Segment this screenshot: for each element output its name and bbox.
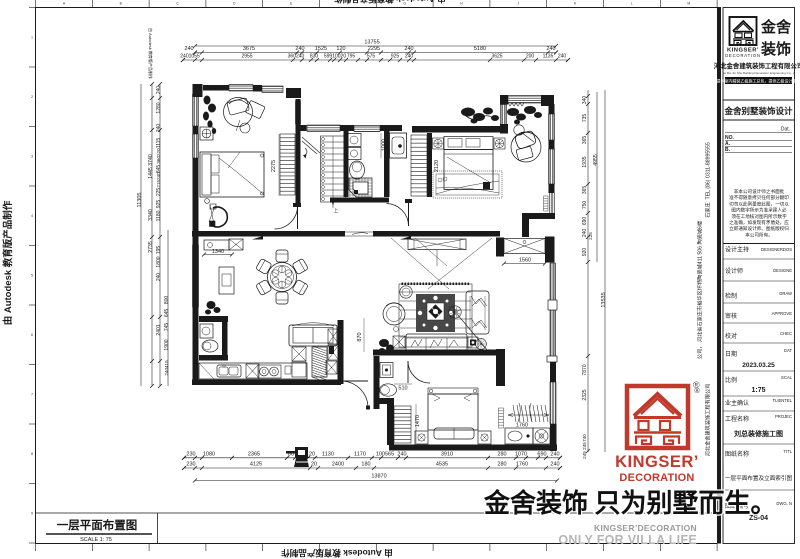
svg-text:230: 230 [186,452,195,458]
svg-text:3340: 3340 [148,209,154,221]
svg-text:925: 925 [391,54,400,60]
svg-text:金舍装饰 只为别墅而生。: 金舍装饰 只为别墅而生。 [483,488,777,518]
svg-text:1130: 1130 [322,452,334,458]
svg-text:925: 925 [156,200,162,209]
svg-text:240: 240 [156,86,162,95]
svg-text:195: 195 [156,246,162,255]
svg-text:SCAL: SCAL [781,375,793,380]
svg-text:920: 920 [582,248,588,257]
svg-text:3675: 3675 [243,46,255,52]
svg-text:KINGSER’DECORATION: KINGSER’DECORATION [594,523,697,533]
svg-text:工程名称: 工程名称 [725,415,749,423]
svg-text:750: 750 [582,201,588,210]
svg-text:本公司所有。: 本公司所有。 [745,231,773,238]
svg-text:审核: 审核 [725,312,737,320]
svg-text:图内数字所示为准承建人必: 图内数字所示为准承建人必 [731,207,787,214]
svg-text:740: 740 [582,434,587,442]
svg-text:2120: 2120 [434,160,440,172]
svg-text:DESIGNE: DESIGNE [773,268,792,273]
svg-text:230: 230 [186,462,195,468]
svg-text:5180: 5180 [474,46,486,52]
svg-text:1135: 1135 [543,54,554,60]
svg-text:7: 7 [31,392,33,396]
svg-text:由 Autodesk 教育版产品制作: 由 Autodesk 教育版产品制作 [148,28,154,79]
svg-text:1800: 1800 [156,256,162,267]
svg-text:刘总装修施工图: 刘总装修施工图 [734,429,783,438]
svg-text:280: 280 [497,462,506,468]
svg-text:3910: 3910 [441,452,453,458]
svg-text:DRAW: DRAW [779,291,792,296]
svg-text:240: 240 [156,124,162,133]
svg-text:DAT: DAT [784,348,793,353]
svg-text:9: 9 [31,511,33,515]
svg-text:1900: 1900 [164,339,170,350]
svg-text:800: 800 [164,296,170,305]
svg-text:Dat.: Dat. [781,127,790,133]
svg-text:DECORATION: DECORATION [619,472,694,484]
svg-text:280: 280 [497,452,506,458]
svg-text:一层平面布置图: 一层平面布置图 [57,518,138,532]
svg-text:B: B [120,2,122,6]
svg-text:比例: 比例 [725,376,737,384]
svg-text:2023.03.25: 2023.03.25 [742,362,775,369]
svg-text:225: 225 [588,232,593,240]
svg-text:3: 3 [31,154,33,158]
svg-text:365: 365 [582,186,588,195]
svg-text:240415: 240415 [164,360,169,376]
svg-text:735: 735 [582,114,588,123]
svg-text:8: 8 [31,452,33,456]
svg-text:ONLY FOR VILLA LIFE: ONLY FOR VILLA LIFE [558,533,697,547]
svg-text:6: 6 [31,333,33,337]
svg-text:180: 180 [361,462,370,468]
svg-text:APPROVE: APPROVE [772,311,792,316]
svg-text:80: 80 [288,452,294,458]
svg-text:金舍别墅装饰设计: 金舍别墅装饰设计 [723,106,793,116]
svg-text:KINGSER’: KINGSER’ [615,453,699,471]
svg-text:1525: 1525 [315,46,327,52]
svg-text:之准确，如发现有矛盾处，应: 之准确，如发现有矛盾处，应 [729,219,789,226]
svg-text:1080: 1080 [203,452,215,458]
svg-text:4535: 4535 [436,462,448,468]
svg-text:E: E [290,2,292,6]
svg-text:DWG. N: DWG. N [776,501,792,506]
svg-text:一层平面布置及立面索引图: 一层平面布置及立面索引图 [725,474,793,482]
svg-text:690: 690 [582,217,588,226]
svg-text:1280: 1280 [156,102,162,113]
svg-text:365: 365 [582,136,588,145]
svg-text:745: 745 [164,323,170,332]
svg-text:1115: 1115 [156,138,162,149]
svg-text:240: 240 [546,46,555,52]
svg-text:河北金舍建筑装饰工程有限公司: 河北金舍建筑装饰工程有限公司 [714,61,800,70]
svg-text:金舍: 金舍 [760,18,792,36]
svg-text:13870: 13870 [371,474,386,480]
svg-text:645: 645 [164,309,170,318]
svg-text:245: 245 [582,442,587,450]
svg-text:3625: 3625 [491,54,502,60]
svg-text:1170: 1170 [354,452,366,458]
svg-text:1:75: 1:75 [751,387,765,394]
svg-text:准不得随意拷贝任何部分翻印: 准不得随意拷贝任何部分翻印 [729,194,789,201]
svg-text:240: 240 [156,273,162,282]
svg-text:切勿以此例量度此图，一切以: 切勿以此例量度此图，一切以 [729,200,789,207]
svg-text:795: 795 [347,54,356,60]
svg-text:He Bei Jin She Building Decora: He Bei Jin She Building Decoration Engin… [722,71,795,75]
svg-text:2400: 2400 [332,462,344,468]
svg-text:L: L [631,2,633,6]
svg-text:业主确认: 业主确认 [725,399,749,407]
svg-text:200: 200 [526,54,535,60]
svg-text:1560: 1560 [519,258,531,264]
svg-text:2401055: 2401055 [180,54,200,60]
svg-text:DECORATION: DECORATION [725,53,761,58]
svg-text:245: 245 [582,451,587,459]
svg-text:510: 510 [398,386,407,392]
svg-text:PROJEC: PROJEC [775,414,792,419]
svg-text:4: 4 [31,214,33,218]
svg-text:1445: 1445 [148,167,154,179]
svg-text:由 Autodesk 教育版产品制作: 由 Autodesk 教育版产品制作 [334,0,446,4]
svg-text:TLIENTEL: TLIENTEL [772,398,792,403]
svg-text:提供室内精装乙级施工总包，提供乙级设计审计: 提供室内精装乙级施工总包，提供乙级设计审计 [717,77,800,83]
svg-text:公司， 河北省石家庄市裕华区怀特陶瓷城411 506 陶瓷城: 公司， 河北省石家庄市裕华区怀特陶瓷城411 506 陶瓷城6楼 [696,221,704,359]
svg-text:360220: 360220 [156,148,161,164]
svg-text:上: 上 [334,207,339,213]
svg-text:215240: 215240 [156,172,161,188]
svg-text:2325: 2325 [582,389,588,400]
svg-text:1340: 1340 [212,249,224,255]
svg-text:360240: 360240 [288,54,305,60]
svg-text:河北金舍建筑装饰工程有限公司: 河北金舍建筑装饰工程有限公司 [704,384,712,457]
svg-text:2: 2 [31,95,33,99]
svg-text:图纸名称: 图纸名称 [725,450,749,458]
svg-text:非本公司设计师之书面批: 非本公司设计师之书面批 [734,188,785,195]
svg-text:2295: 2295 [368,46,380,52]
svg-text:由 Autodesk 教育版产品制作: 由 Autodesk 教育版产品制作 [281,548,393,558]
svg-text:225: 225 [156,188,162,197]
svg-text:20: 20 [309,452,315,458]
svg-text:B.: B. [725,147,731,153]
svg-text:设计师: 设计师 [725,267,743,275]
svg-text:2401: 2401 [156,324,162,335]
svg-text:CHEC: CHEC [780,331,792,336]
svg-text:须在工地核对图内所示数字: 须在工地核对图内所示数字 [731,213,787,220]
svg-text:DESIGNERDOS: DESIGNERDOS [761,247,792,252]
svg-text:870: 870 [357,332,363,341]
svg-text:石家庄 TEL (86) 0311-88995555: 石家庄 TEL (86) 0311-88995555 [704,142,712,218]
svg-text:1000: 1000 [382,139,388,151]
svg-text:M: M [687,2,690,6]
svg-text:240: 240 [404,46,413,52]
svg-text:100565: 100565 [376,452,394,458]
svg-text:检制: 检制 [725,292,737,300]
svg-text:立即通知设计师。图纸版权归: 立即通知设计师。图纸版权归 [729,225,789,232]
svg-text:校对: 校对 [725,332,737,340]
svg-text:845: 845 [156,165,162,174]
svg-text:2955: 2955 [241,54,252,60]
svg-text:7870: 7870 [582,364,588,375]
svg-text:2275: 2275 [271,160,277,172]
svg-text:SCALE 1: 75: SCALE 1: 75 [80,537,112,543]
svg-text:1: 1 [31,35,33,39]
svg-text:1180: 1180 [156,210,162,221]
svg-text:830: 830 [310,54,319,60]
svg-text:240: 240 [550,452,559,458]
svg-text:2365: 2365 [248,452,260,458]
svg-text:3740: 3740 [148,154,154,166]
svg-text:13755: 13755 [364,40,379,46]
svg-text:1935: 1935 [582,156,588,167]
svg-text:日期: 日期 [725,350,737,358]
svg-text:1760: 1760 [516,423,528,429]
svg-text:11305: 11305 [137,193,143,208]
svg-text:5: 5 [31,273,33,277]
svg-text:®: ® [693,380,700,390]
svg-text:240: 240 [184,46,193,52]
svg-text:240: 240 [558,54,567,60]
svg-text:设计主持: 设计主持 [725,246,749,254]
svg-text:TITL: TITL [783,449,792,454]
svg-text:13535: 13535 [601,292,607,307]
svg-text:装饰: 装饰 [760,40,791,58]
svg-text:由 Autodesk 教育版产品制作: 由 Autodesk 教育版产品制作 [2,200,14,325]
svg-text:240: 240 [405,54,414,60]
svg-text:4955: 4955 [593,154,599,166]
svg-text:240: 240 [550,462,559,468]
svg-text:2735: 2735 [148,241,154,253]
svg-text:4125: 4125 [250,462,262,468]
svg-text:340: 340 [582,96,588,105]
